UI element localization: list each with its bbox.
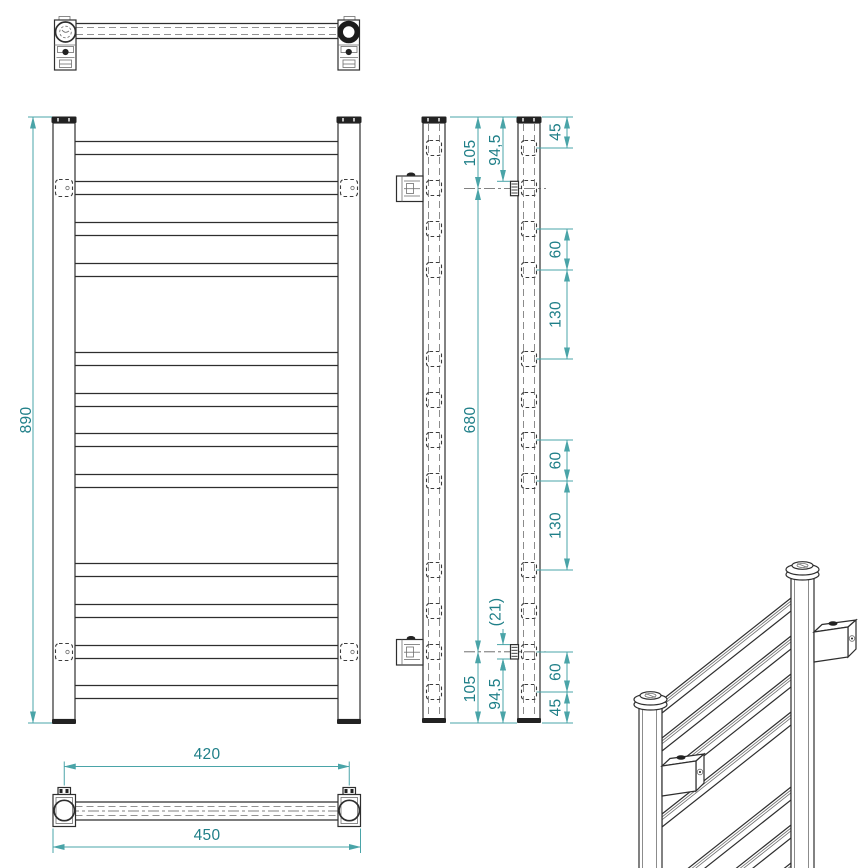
side-tube-2 bbox=[518, 123, 540, 720]
screw-head bbox=[62, 49, 68, 55]
dim-label-130-mid: 130 bbox=[548, 512, 565, 539]
view-side: 105 94,5 680 (21) 105 94,5 bbox=[397, 117, 574, 724]
drawing-canvas: 890 bbox=[0, 0, 868, 868]
dim-label-60-bottom: 60 bbox=[548, 663, 565, 681]
dim-label-105-top: 105 bbox=[462, 140, 479, 167]
dim-pipe-center-width: 420 bbox=[64, 746, 349, 786]
bottom-left-cap bbox=[53, 788, 76, 827]
technical-drawing-page: 890 bbox=[0, 0, 868, 868]
front-right-post bbox=[338, 123, 360, 720]
dim-overall-height: 890 bbox=[18, 117, 52, 723]
front-feet bbox=[52, 719, 361, 724]
bottom-right-cap bbox=[338, 788, 361, 827]
front-caps bbox=[52, 117, 362, 124]
iso-bracket-right bbox=[814, 620, 856, 662]
side-wall-bracket-upper bbox=[397, 173, 424, 202]
dim-overall-width: 450 bbox=[53, 827, 361, 853]
dim-label-890: 890 bbox=[18, 407, 35, 434]
dim-label-21: (21) bbox=[488, 598, 505, 627]
dim-label-94-5-top: 94,5 bbox=[487, 134, 504, 165]
hook-connector-lower bbox=[511, 645, 519, 659]
screw-head bbox=[346, 49, 352, 55]
view-3d bbox=[634, 562, 856, 868]
iso-bracket-left bbox=[662, 754, 704, 796]
dim-label-45-bottom: 45 bbox=[548, 699, 565, 717]
front-left-post bbox=[53, 123, 75, 720]
view-top bbox=[55, 17, 360, 71]
dim-label-60-top: 60 bbox=[548, 241, 565, 259]
dim-label-450: 450 bbox=[194, 827, 221, 844]
dim-chain-bracket: 105 94,5 680 (21) 105 94,5 bbox=[450, 117, 517, 723]
dim-label-60-mid: 60 bbox=[548, 452, 565, 470]
iso-rung bbox=[662, 863, 791, 868]
top-left-valve-fitting bbox=[55, 17, 77, 71]
dim-label-680: 680 bbox=[462, 407, 479, 434]
dim-label-130-top: 130 bbox=[548, 301, 565, 328]
dim-label-105-bottom: 105 bbox=[462, 676, 479, 703]
hook-connector-upper bbox=[511, 181, 519, 195]
dim-label-420: 420 bbox=[194, 746, 221, 763]
dim-label-94-5-bottom: 94,5 bbox=[487, 678, 504, 709]
iso-rungs bbox=[662, 598, 791, 868]
dim-label-45-top: 45 bbox=[548, 123, 565, 141]
front-mounting-points bbox=[56, 180, 358, 661]
side-tube-1 bbox=[423, 123, 445, 720]
side-wall-bracket-lower bbox=[397, 636, 424, 665]
front-rungs bbox=[75, 142, 338, 699]
iso-left-cap bbox=[634, 692, 667, 710]
view-front: 890 bbox=[18, 117, 362, 725]
iso-right-cap bbox=[786, 562, 819, 580]
top-right-plug-fitting bbox=[338, 17, 360, 71]
dim-chain-rungs: 45 60 130 60 130 60 45 bbox=[537, 117, 574, 723]
view-bottom: 420 450 bbox=[53, 746, 361, 853]
